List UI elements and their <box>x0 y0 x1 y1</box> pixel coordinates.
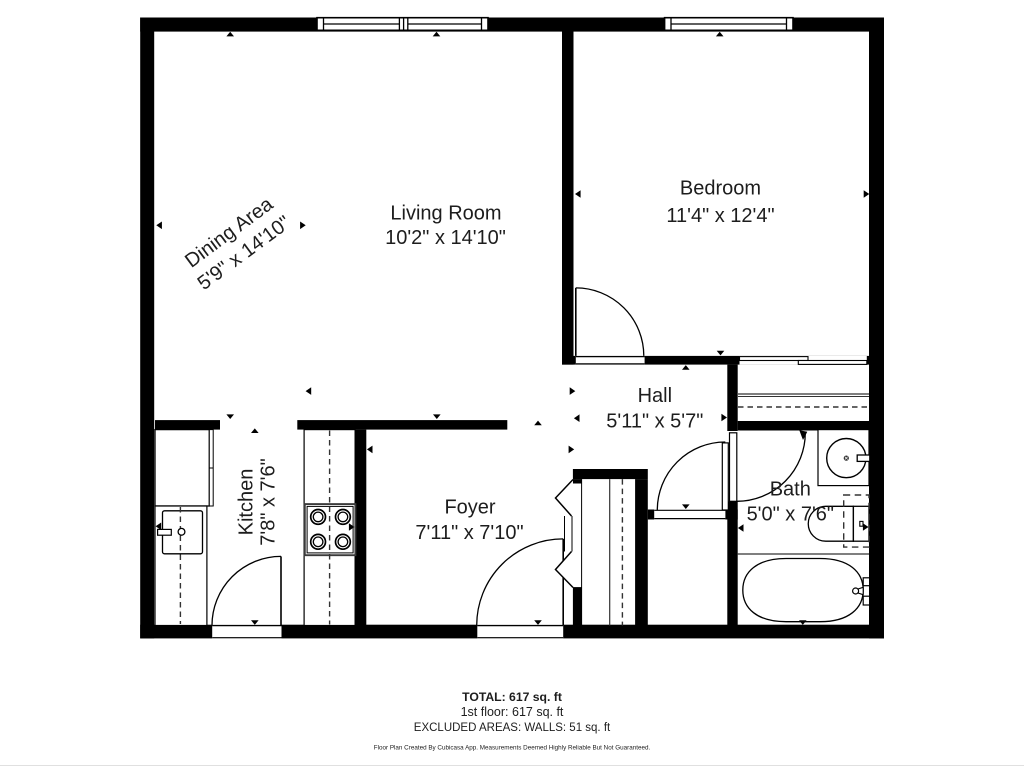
svg-text:Bedroom: Bedroom <box>680 178 761 200</box>
svg-text:Hall: Hall <box>638 385 672 407</box>
svg-text:7'11" x 7'10": 7'11" x 7'10" <box>415 522 523 544</box>
svg-text:11'4" x 12'4": 11'4" x 12'4" <box>666 205 774 227</box>
svg-text:10'2" x 14'10": 10'2" x 14'10" <box>385 227 506 249</box>
svg-text:EXCLUDED AREAS: WALLS: 51 sq.: EXCLUDED AREAS: WALLS: 51 sq. ft <box>414 722 611 734</box>
svg-text:Floor Plan Created By Cubicasa: Floor Plan Created By Cubicasa App. Meas… <box>374 745 651 752</box>
svg-text:Kitchen: Kitchen <box>236 469 258 536</box>
svg-text:Bath: Bath <box>770 479 811 501</box>
svg-text:1st floor: 617 sq. ft: 1st floor: 617 sq. ft <box>461 705 564 719</box>
svg-text:TOTAL: 617 sq. ft: TOTAL: 617 sq. ft <box>462 690 562 704</box>
svg-text:5'11" x 5'7": 5'11" x 5'7" <box>606 411 703 433</box>
svg-text:5'0" x 7'6": 5'0" x 7'6" <box>747 504 834 526</box>
svg-text:Living Room: Living Room <box>390 203 501 225</box>
svg-text:Foyer: Foyer <box>444 496 495 518</box>
svg-text:7'8" x 7'6": 7'8" x 7'6" <box>258 458 280 545</box>
